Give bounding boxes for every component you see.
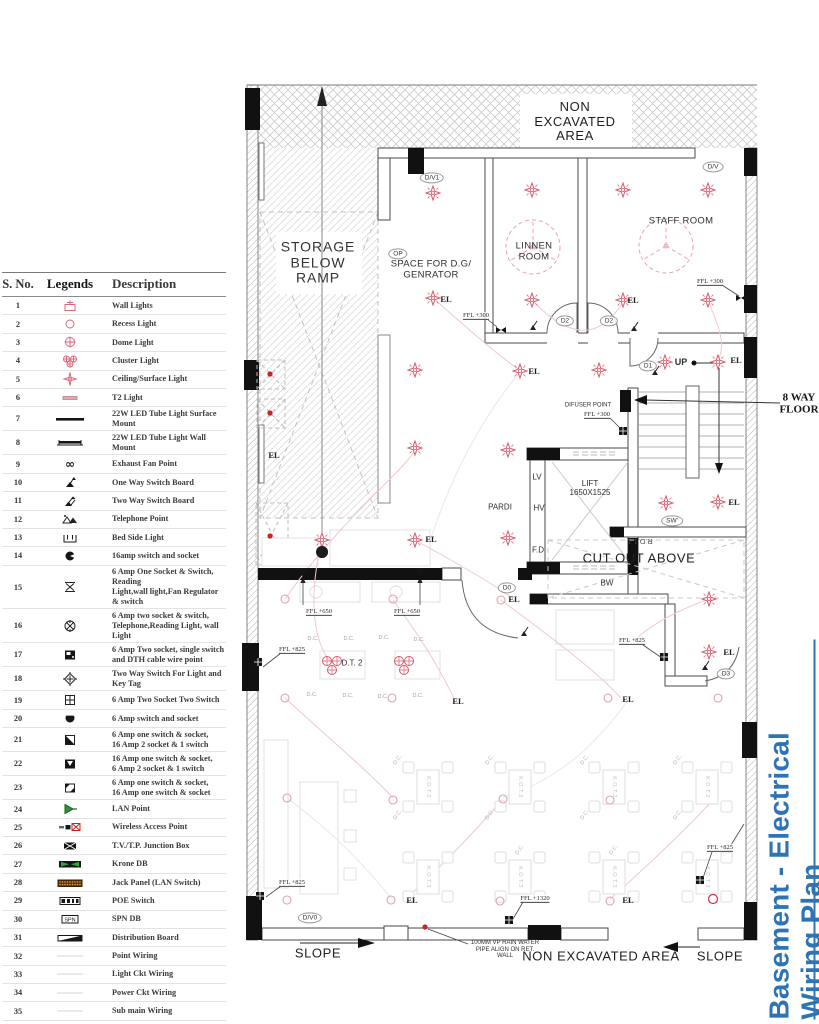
legend-row: 3Dome Light [2,334,226,352]
s15-icon [34,580,106,594]
legend-row-number: 12 [2,515,34,524]
legend-row: 5Ceiling/Surface Light [2,371,226,389]
legend-row-description: 6 Amp one switch & socket, 16 Amp one sw… [106,778,226,798]
legend-row-number: 1 [2,301,34,310]
recess-light-icon [387,896,395,904]
wall-light-icon [34,299,106,313]
s20-icon [34,711,106,725]
staircase [638,361,744,479]
wire-icon [34,949,106,963]
legend-row-description: One Way Switch Board [106,478,226,488]
legend-row: 1416amp switch and socket [2,547,226,565]
legend-row: 176 Amp Two socket, single switch and DT… [2,643,226,667]
switch-board-icon [631,326,637,331]
legend-row: 24LAN Point [2,800,226,818]
wap-icon [34,820,106,834]
red-dot-icon [422,924,427,929]
recess-light-icon [604,694,612,702]
legend-row-number: 33 [2,970,34,979]
legend-header-symbols: Legends [34,276,106,292]
recess-light-icon [283,896,291,904]
legend-row-number: 8 [2,438,34,447]
switch-board-icon [521,631,527,636]
legend-row-number: 15 [2,583,34,592]
legend-row-description: Two Way Switch Board [106,496,226,506]
label-mask [520,94,632,148]
tube-wall-icon [34,436,106,450]
legend-row-number: 18 [2,674,34,683]
sheet-title: Basement - Electrical Wiring Plan [779,640,816,1020]
telephone-icon [34,512,106,526]
wire-icon [34,1004,106,1018]
krone-icon [34,857,106,871]
legend-row-number: 5 [2,375,34,384]
legend-row-description: SPN DB [106,914,226,924]
s21-icon [34,733,106,747]
legend-row-description: Power Ckt Wiring [106,988,226,998]
legend-row: 33Light Ckt Wiring [2,966,226,984]
legend-row: 30SPNSPN DB [2,911,226,929]
legend-row-description: T.V./T.P. Junction Box [106,841,226,851]
legend-row: 18Two Way Switch For Light and Key Tag [2,667,226,691]
red-dot-icon [267,371,272,376]
s22-icon [34,757,106,771]
legend-row-description: 6 Amp Two socket, single switch and DTH … [106,645,226,665]
leader-line [731,824,744,845]
legend-body: 1Wall Lights2Recess Light3Dome Light4Clu… [2,297,226,1024]
legend-row: 236 Amp one switch & socket, 16 Amp one … [2,776,226,800]
red-dot-icon [267,410,272,415]
legend-header: S. No. Legends Description [2,273,226,297]
legend-row-number: 31 [2,933,34,942]
legend-row-number: 26 [2,841,34,850]
legend-row: 35Sub main Wiring [2,1002,226,1020]
lift-shaft [552,452,628,569]
legend-row: 206 Amp switch and socket [2,710,226,728]
legend-row: 2216 Amp one switch & socket, 6 Amp 2 so… [2,752,226,776]
legend-row: 2Recess Light [2,315,226,333]
legend-row-description: POE Switch [106,896,226,906]
legend-row-description: Two Way Switch For Light and Key Tag [106,669,226,689]
legend-row-number: 20 [2,714,34,723]
exhaust-fan-icon: ∞ [34,457,106,471]
legend-row-number: 30 [2,915,34,924]
switch-board-icon [530,325,536,330]
legend-row-description: Cluster Light [106,356,226,366]
legend-row-number: 34 [2,988,34,997]
legend-row-number: 6 [2,393,34,402]
legend-row-description: Bed Side Light [106,533,226,543]
legend-row-number: 22 [2,759,34,768]
cluster-icon [34,354,106,368]
legend-row-description: Ceiling/Surface Light [106,374,226,384]
legend-row-number: 29 [2,896,34,905]
legend-row-number: 10 [2,478,34,487]
ceiling-icon [34,372,106,386]
legend-row-number: 24 [2,805,34,814]
legend-row: 27Krone DB [2,855,226,873]
svg-text:SPN: SPN [64,918,75,924]
legend-row-description: Dome Light [106,338,226,348]
legend-row-description: 6 Amp One Socket & Switch, Reading Light… [106,567,226,606]
wall-fixture-icon [496,327,501,333]
svg-text:∞: ∞ [65,457,75,471]
legend-row: 28Jack Panel (LAN Switch) [2,874,226,892]
legend-row-number: 35 [2,1007,34,1016]
recess-icon [34,317,106,331]
leader-line [513,902,523,919]
legend-row: 156 Amp One Socket & Switch, Reading Lig… [2,566,226,610]
legend-row-number: 7 [2,414,34,423]
poe-icon [34,894,106,908]
legend-row-number: 11 [2,496,34,505]
s17-icon [34,648,106,662]
legend-row-description: Wireless Access Point [106,822,226,832]
s16-icon [34,619,106,633]
db-icon [34,931,106,945]
wall-niche [259,143,264,200]
legend-row: 196 Amp Two Socket Two Switch [2,691,226,709]
legend-row-description: Exhaust Fan Point [106,459,226,469]
legend-row-number: 25 [2,823,34,832]
lan-icon [34,802,106,816]
wire-icon [34,986,106,1000]
legend-row-number: 2 [2,320,34,329]
wall-niche [259,425,264,483]
legend-row-description: Distribution Board [106,933,226,943]
legend-row-description: 22W LED Tube Light Surface Mount [106,409,226,429]
legend-row-number: 27 [2,860,34,869]
s23-icon [34,781,106,795]
red-dot-icon [267,533,272,538]
leader-line [722,285,739,296]
legend-header-description: Description [106,276,226,292]
legend-row-description: Recess Light [106,319,226,329]
legend-row: 26T.V./T.P. Junction Box [2,837,226,855]
legend-row-description: 6 Amp Two Socket Two Switch [106,695,226,705]
legend-row-number: 3 [2,338,34,347]
recess-light-icon [709,895,718,904]
legend-row-description: Sub main Wiring [106,1006,226,1016]
legend-row: 29POE Switch [2,892,226,910]
legend-row-number: 13 [2,533,34,542]
legend-row-number: 23 [2,783,34,792]
legend-row: 722W LED Tube Light Surface Mount [2,407,226,431]
legend-row-description: Wall Lights [106,301,226,311]
legend-row-description: T2 Light [106,393,226,403]
legend-row-number: 17 [2,650,34,659]
legend-row-number: 28 [2,878,34,887]
legend-row: 1Wall Lights [2,297,226,315]
socket16-icon [34,549,106,563]
legend-row: 31Distribution Board [2,929,226,947]
recess-light-icon [389,796,397,804]
ramp-point-icon [316,546,328,558]
legend-row: 25Wireless Access Point [2,819,226,837]
recess-light-icon [606,897,614,905]
switch-board-icon [652,370,658,375]
t2-icon [34,391,106,405]
legend-row: 12Telephone Point [2,511,226,529]
legend-row-number: 21 [2,735,34,744]
legend-header-sno: S. No. [2,277,34,292]
legend-row-number: 16 [2,621,34,630]
legend-row: 166 Amp two socket & switch, Telephone,R… [2,609,226,643]
bedside-icon [34,531,106,545]
recess-light-icon [714,694,722,702]
leader-line [643,645,662,658]
legend-row-description: Light Ckt Wiring [106,969,226,979]
legend-table: S. No. Legends Description 1Wall Lights2… [2,272,226,1024]
legend-row: 11Two Way Switch Board [2,492,226,510]
legend-row-number: 32 [2,952,34,961]
legend-row-description: Point Wiring [106,951,226,961]
one-way-switch-icon [34,475,106,489]
s18-icon [34,672,106,686]
legend-row: 34Power Ckt Wiring [2,984,226,1002]
tube-surface-icon [34,412,106,426]
recess-light-icon [388,694,396,702]
jack-icon [34,876,106,890]
legend-row-description: 6 Amp two socket & switch, Telephone,Rea… [106,611,226,641]
legend-row: 822W LED Tube Light Wall Mount [2,431,226,455]
two-way-switch-icon [34,494,106,508]
legend-row-number: 4 [2,356,34,365]
leader-line [610,418,621,429]
legend-row-description: 16amp switch and socket [106,551,226,561]
legend-row: 10One Way Switch Board [2,474,226,492]
legend-row-number: 19 [2,696,34,705]
legend-row-description: 6 Amp switch and socket [106,714,226,724]
label-mask [276,232,362,294]
leader-line [263,653,281,667]
legend-row-description: 22W LED Tube Light Wall Mount [106,433,226,453]
tv-icon [34,839,106,853]
wire-icon [34,967,106,981]
legend-row-description: Telephone Point [106,514,226,524]
dome-icon [34,335,106,349]
legend-row-description: 6 Amp one switch & socket, 16 Amp 2 sock… [106,730,226,750]
legend-row: 32Point Wiring [2,947,226,965]
legend-row: 6T2 Light [2,389,226,407]
legend-row-description: Krone DB [106,859,226,869]
electrical-wiring-plan-page: S. No. Legends Description 1Wall Lights2… [0,0,819,1024]
legend-row: 13Bed Side Light [2,529,226,547]
legend-row-number: 9 [2,460,34,469]
legend-row: 4Cluster Light [2,352,226,370]
legend-row: 216 Amp one switch & socket, 16 Amp 2 so… [2,728,226,752]
legend-row-description: 16 Amp one switch & socket, 6 Amp 2 sock… [106,754,226,774]
legend-row-description: Jack Panel (LAN Switch) [106,878,226,888]
spn-icon: SPN [34,912,106,926]
ramp-wall [378,335,390,503]
legend-row-description: LAN Point [106,804,226,814]
s19-icon [34,693,106,707]
legend-row: 9∞Exhaust Fan Point [2,455,226,473]
legend-row-number: 14 [2,551,34,560]
switch-board-icon [702,665,708,670]
